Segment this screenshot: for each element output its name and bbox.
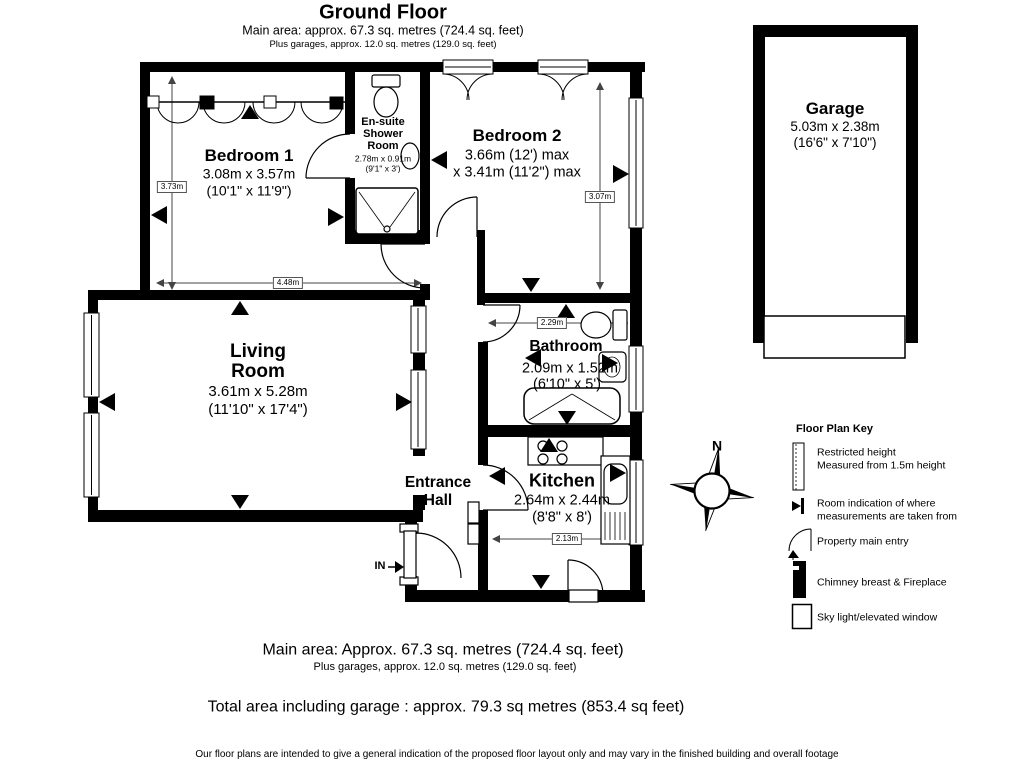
stove — [528, 437, 603, 465]
compass-north-label: N — [712, 439, 722, 454]
page-subtitle: Main area: approx. 67.3 sq. metres (724.… — [242, 24, 523, 37]
living-room-dims-ft: (11'10" x 17'4") — [208, 402, 308, 418]
garage-structure — [753, 25, 918, 358]
footer-total-area: Total area including garage : approx. 79… — [208, 700, 685, 717]
garage-door — [764, 316, 905, 358]
ensuite-name-1: En-suite — [361, 117, 404, 129]
entrance-hall-name-1: Entrance — [405, 475, 471, 491]
shower-tray — [356, 188, 418, 234]
footer-garage-area: Plus garages, approx. 12.0 sq. metres (1… — [314, 662, 577, 674]
bedroom2-name: Bedroom 2 — [473, 127, 562, 145]
key-item-5-line1: Sky light/elevated window — [817, 612, 937, 623]
bedroom1-dims-ft: (10'1" x 11'9") — [206, 184, 291, 199]
bedroom2-door — [437, 197, 477, 237]
dim-label-bathroom-width: 2.29m — [537, 317, 567, 329]
living-room-name-1: Living — [230, 342, 286, 362]
key-item-3-line1: Property main entry — [817, 536, 909, 547]
bathroom-dims-m: 2.09m x 1.52m — [522, 361, 618, 376]
entry-in-label: IN — [375, 561, 386, 573]
kitchen-name: Kitchen — [529, 472, 595, 491]
measurement-origin-icon — [789, 497, 807, 520]
key-item-1-line2: Measured from 1.5m height — [817, 460, 945, 471]
kitchen-dims-ft: (8'8" x 8') — [532, 510, 592, 525]
bathroom-toilet — [581, 310, 627, 340]
back-door — [568, 560, 603, 602]
garage-dims-m: 5.03m x 2.38m — [790, 120, 879, 134]
bedroom1-dims-m: 3.08m x 3.57m — [203, 167, 296, 182]
compass-rose — [664, 441, 760, 537]
bedroom2-dims-2: x 3.41m (11'2") max — [453, 165, 581, 180]
bathtub — [524, 388, 620, 424]
restricted-height-icon — [792, 442, 806, 497]
page-title: Ground Floor — [319, 3, 447, 24]
front-door — [400, 524, 461, 585]
page-subtitle2: Plus garages, approx. 12.0 sq. metres (1… — [269, 40, 496, 50]
key-item-2-line1: Room indication of where — [817, 498, 935, 509]
key-title: Floor Plan Key — [796, 424, 873, 436]
ensuite-name-2: Shower — [363, 129, 403, 141]
dim-label-kitchen-width: 2.13m — [552, 533, 582, 545]
ensuite-dims-m: 2.78m x 0.91m — [355, 155, 411, 164]
key-item-4-line1: Chimney breast & Fireplace — [817, 577, 947, 588]
footer-disclaimer: Our floor plans are intended to give a g… — [195, 750, 838, 761]
window-swing-arcs — [443, 74, 588, 100]
key-item-1-line1: Restricted height — [817, 447, 896, 458]
entry-arrow-icon — [388, 561, 404, 573]
chimney-icon — [793, 561, 807, 604]
key-item-2-line2: measurements are taken from — [817, 511, 957, 522]
dim-label-bed1-horizontal: 4.48m — [273, 277, 303, 289]
bathroom-dims-ft: (6'10" x 5') — [533, 377, 601, 392]
dim-label-bed1-vertical: 3.73m — [157, 181, 187, 193]
skylight-icon — [791, 603, 814, 636]
footer-main-area: Main area: Approx. 67.3 sq. metres (724.… — [262, 643, 623, 660]
ensuite-name-3: Room — [367, 141, 398, 153]
ensuite-dims-ft: (9'1" x 3') — [365, 165, 400, 174]
ensuite-toilet — [372, 75, 400, 117]
living-room-dims-m: 3.61m x 5.28m — [208, 384, 307, 400]
bedroom2-dims-1: 3.66m (12') max — [465, 148, 569, 163]
garage-name: Garage — [806, 100, 865, 118]
bedroom1-name: Bedroom 1 — [205, 147, 294, 165]
entrance-hall-name-2: Hall — [424, 493, 452, 509]
ensuite-door — [306, 134, 350, 178]
bathroom-name: Bathroom — [529, 339, 602, 355]
living-room-name-2: Room — [231, 362, 285, 382]
dim-label-bed2-vertical: 3.07m — [585, 191, 615, 203]
floor-plan-page: Ground Floor Main area: approx. 67.3 sq.… — [0, 0, 1024, 768]
hall-cupboard — [468, 502, 479, 544]
garage-dims-ft: (16'6" x 7'10") — [793, 136, 876, 150]
kitchen-dims-m: 2.64m x 2.44m — [514, 493, 610, 508]
